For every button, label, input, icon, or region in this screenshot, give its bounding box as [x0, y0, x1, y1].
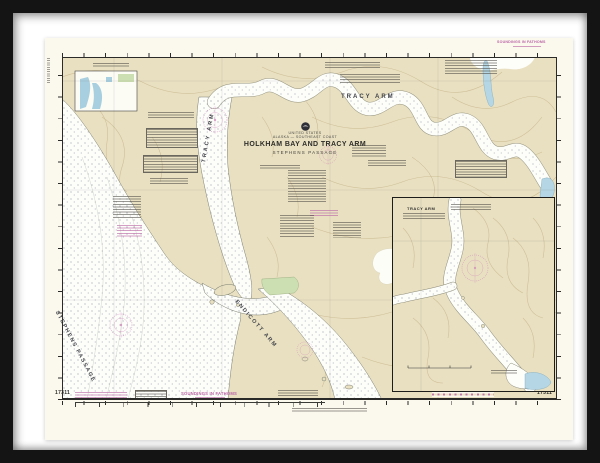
- note-block: [148, 112, 194, 120]
- note-block: [325, 62, 380, 69]
- chart-subtitle: STEPHENS PASSAGE: [215, 150, 395, 155]
- soundings-note-top-sub: [513, 46, 541, 48]
- label-tracy-arm: TRACY ARM: [341, 94, 395, 100]
- note-block: [445, 60, 497, 74]
- chart-title: HOLKHAM BAY AND TRACY ARM: [215, 141, 395, 148]
- mat-board: SOUNDINGS IN FATHOMS: [13, 13, 587, 450]
- note-block: [333, 222, 361, 238]
- note-block: [340, 74, 400, 84]
- note-table: [146, 128, 198, 148]
- note-table: [455, 160, 507, 178]
- soundings-note: SOUNDINGS IN FATHOMS: [181, 391, 237, 396]
- margin-note-box: [135, 390, 167, 399]
- mini-inset: [75, 71, 137, 111]
- inset-note: [451, 204, 491, 210]
- note-block: [93, 63, 129, 68]
- note-block-magenta: [310, 210, 338, 218]
- inset-note: [491, 370, 517, 375]
- note-block: [280, 215, 314, 237]
- note-block-magenta: [117, 225, 142, 237]
- tidal-flats: [262, 277, 299, 295]
- chart-paper: SOUNDINGS IN FATHOMS: [45, 38, 573, 440]
- left-margin-note: [47, 58, 50, 84]
- chart-number-left: 17311: [55, 390, 70, 396]
- soundings-note-top: SOUNDINGS IN FATHOMS: [497, 40, 546, 44]
- margin-note-center: [292, 408, 367, 412]
- margin-note: [278, 390, 318, 398]
- noaa-logo: [301, 122, 310, 131]
- note-table: [143, 155, 198, 173]
- note-block: [368, 160, 406, 168]
- chart-region: ALASKA — SOUTHEAST COAST: [215, 135, 395, 139]
- soundings-note-sub: [195, 397, 225, 399]
- note-block: [288, 170, 326, 204]
- chart-title-block: UNITED STATES ALASKA — SOUTHEAST COAST H…: [215, 122, 395, 155]
- note-block: [113, 196, 141, 218]
- margin-note-magenta: [75, 392, 127, 398]
- note-block: [150, 178, 188, 185]
- inset-note: [403, 213, 445, 221]
- border-ticks-right: [557, 57, 561, 400]
- inset-title: TRACY ARM: [407, 206, 435, 211]
- inset-map-graphic: [393, 198, 554, 391]
- scale-bar: [75, 402, 325, 407]
- framed-nautical-chart: SOUNDINGS IN FATHOMS: [0, 0, 600, 463]
- tracy-arm-inset: TRACY ARM: [392, 197, 555, 392]
